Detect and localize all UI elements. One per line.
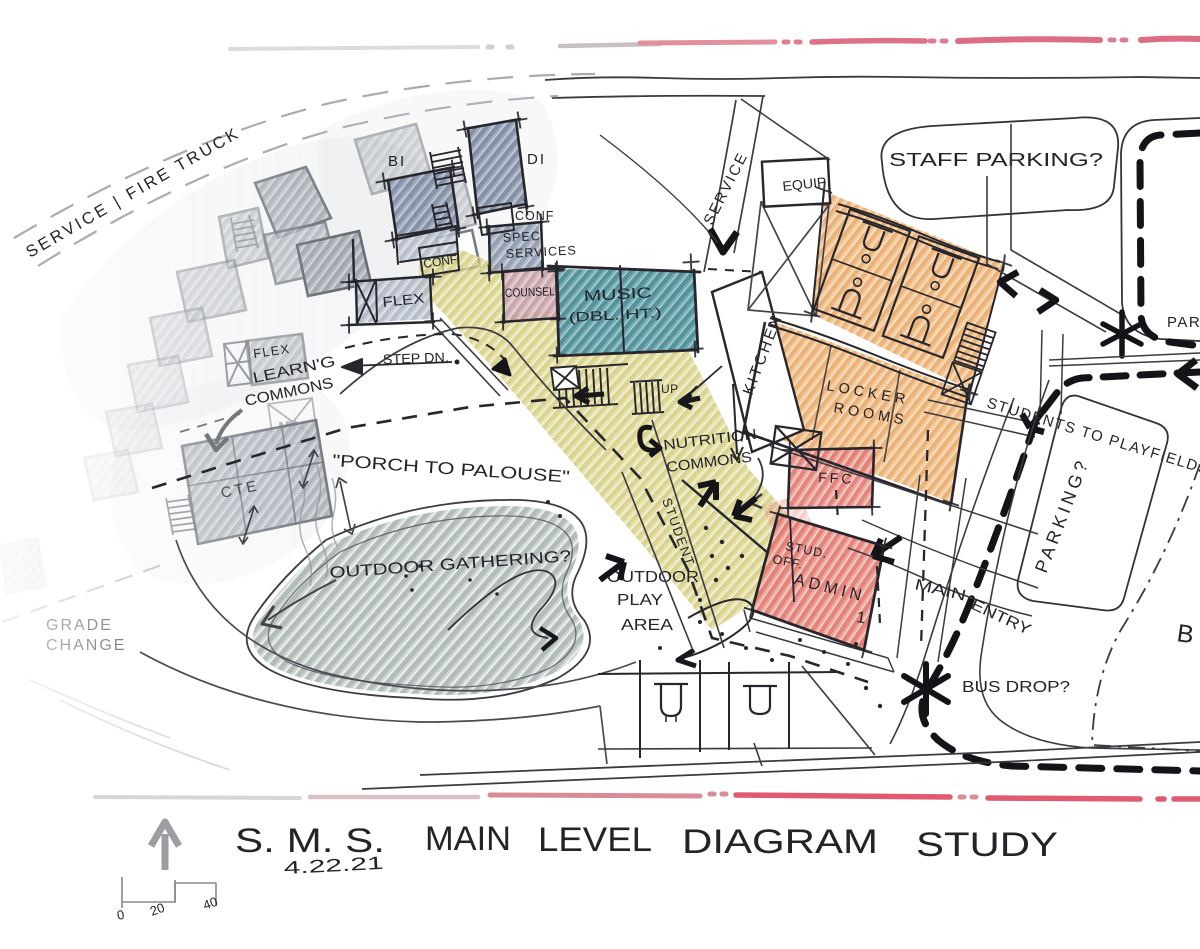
svg-text:MAIN: MAIN [425, 820, 511, 858]
svg-text:UP: UP [661, 382, 679, 396]
svg-text:DIAGRAM: DIAGRAM [682, 823, 878, 861]
svg-text:AREA: AREA [621, 617, 674, 634]
svg-text:CHANGE: CHANGE [46, 637, 126, 654]
svg-text:PARK: PARK [1167, 314, 1200, 331]
svg-text:PLAY: PLAY [617, 592, 663, 609]
svg-text:FFC: FFC [818, 469, 855, 487]
svg-text:GRADE: GRADE [46, 617, 113, 634]
svg-text:STUDY: STUDY [916, 826, 1058, 864]
svg-text:LEVEL: LEVEL [538, 821, 652, 859]
svg-text:MUSIC: MUSIC [583, 284, 652, 305]
svg-text:DI: DI [527, 151, 546, 168]
svg-text:BUS DROP?: BUS DROP? [962, 679, 1070, 696]
svg-text:BI: BI [388, 153, 406, 170]
svg-text:SPEC: SPEC [502, 229, 541, 245]
svg-text:COUNSEL: COUNSEL [505, 284, 556, 300]
svg-text:STAFF PARKING?: STAFF PARKING? [889, 150, 1103, 170]
